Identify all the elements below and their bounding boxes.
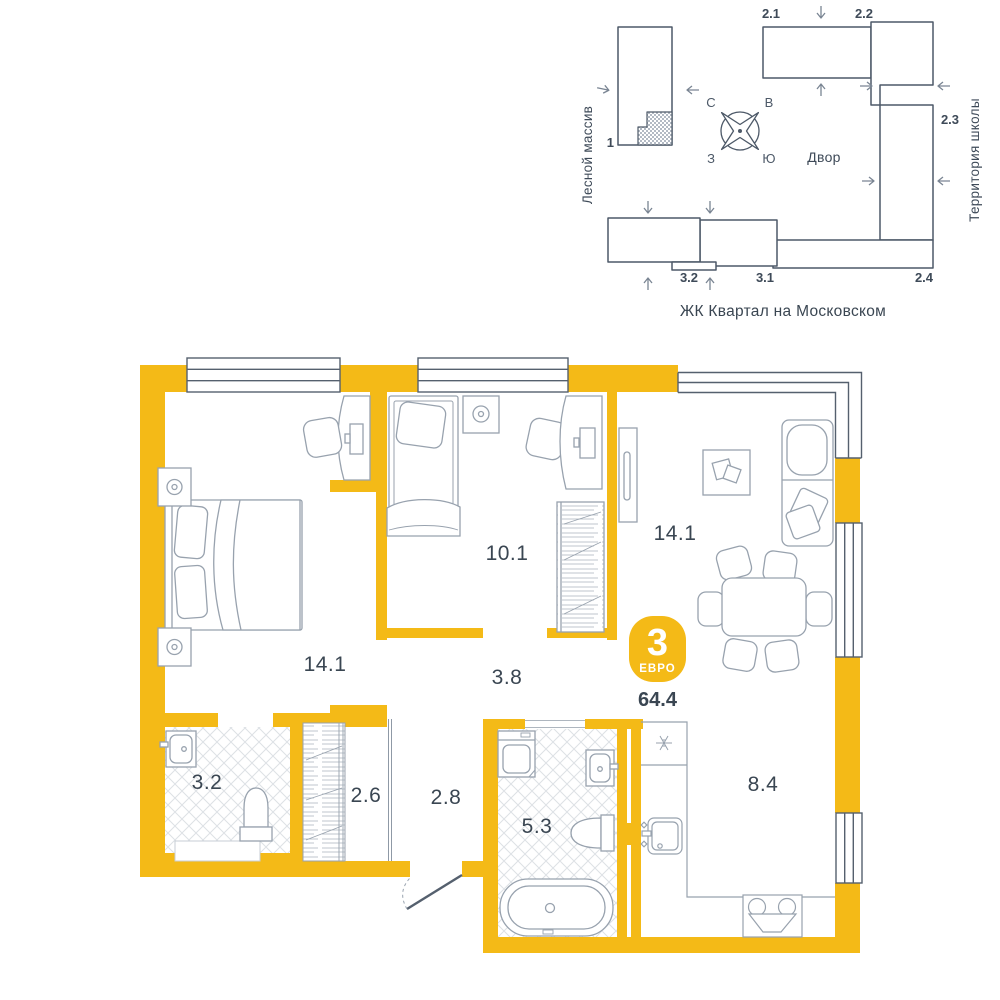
kitchen-faucet bbox=[642, 831, 651, 836]
window-right-1 bbox=[836, 523, 862, 657]
badge-type-label: ЕВРО bbox=[639, 663, 675, 675]
speaker-bottom bbox=[158, 628, 191, 666]
entry-hall-area: 2.8 bbox=[431, 786, 462, 809]
stove bbox=[743, 895, 802, 937]
bathroom-faucet bbox=[610, 764, 618, 769]
apartment-plan: 14.1 10.1 14.1 3.8 3.2 2.6 2.8 5.3 8.4 3… bbox=[140, 358, 862, 953]
compass-west: З bbox=[707, 151, 715, 166]
wardrobe-bedroom-2 bbox=[557, 502, 604, 632]
building-2-1 bbox=[763, 27, 871, 78]
desk-1 bbox=[338, 396, 370, 480]
bathroom-door-opening bbox=[525, 721, 585, 728]
wc-sink bbox=[160, 731, 196, 767]
chair-1 bbox=[302, 416, 343, 459]
window-top-1 bbox=[187, 358, 340, 392]
building-2-3 bbox=[880, 105, 933, 240]
apartment-type-badge: 3 ЕВРО 64.4 bbox=[629, 616, 686, 711]
bedroom-2-area: 10.1 bbox=[486, 542, 529, 565]
building-tab bbox=[672, 262, 716, 270]
wc-area: 3.2 bbox=[192, 771, 223, 794]
double-bed bbox=[165, 500, 302, 630]
washing-machine bbox=[498, 731, 535, 777]
fridge-icon bbox=[656, 736, 672, 750]
courtyard-label: Двор bbox=[807, 149, 841, 165]
bedroom-2-furniture bbox=[387, 396, 604, 632]
hallway-area: 3.8 bbox=[492, 666, 523, 689]
bathroom-area: 5.3 bbox=[522, 815, 553, 838]
wc-faucet bbox=[160, 742, 168, 747]
monitor-1 bbox=[350, 424, 363, 454]
site-plan: С В З Ю 1 2.1 2.2 2.3 2.4 3.1 3.2 Двор Л… bbox=[580, 6, 982, 320]
kitchen-counter bbox=[641, 722, 835, 897]
building-2-3-label: 2.3 bbox=[941, 112, 959, 127]
building-3-1-label: 3.1 bbox=[756, 270, 774, 285]
tv-stand bbox=[619, 428, 637, 522]
speaker-bedroom-2 bbox=[463, 396, 499, 433]
site-buildings bbox=[608, 22, 933, 270]
wall-niche bbox=[175, 841, 260, 861]
bedroom-1-area: 14.1 bbox=[304, 653, 347, 676]
compass-center-dot bbox=[738, 129, 742, 133]
window-corner bbox=[678, 373, 862, 459]
closet-sliding-door bbox=[389, 719, 392, 861]
compass-north: С bbox=[706, 95, 715, 110]
compass: С В З Ю bbox=[706, 95, 775, 166]
total-area-value: 64.4 bbox=[638, 689, 678, 711]
bathtub bbox=[500, 879, 613, 936]
building-3-2 bbox=[608, 218, 700, 262]
corner-sofa bbox=[782, 420, 833, 546]
monitor-2 bbox=[580, 428, 595, 458]
left-area-label: Лесной массив bbox=[580, 106, 595, 204]
badge-rooms-count: 3 bbox=[647, 622, 668, 664]
coffee-table bbox=[703, 450, 750, 495]
building-2-2 bbox=[871, 22, 933, 105]
window-right-2 bbox=[836, 813, 862, 883]
plan-canvas: С В З Ю 1 2.1 2.2 2.3 2.4 3.1 3.2 Двор Л… bbox=[0, 0, 1000, 1000]
living-room-area: 14.1 bbox=[654, 522, 697, 545]
floorplan-screenshot: С В З Ю 1 2.1 2.2 2.3 2.4 3.1 3.2 Двор Л… bbox=[0, 0, 1000, 1000]
complex-title: ЖК Квартал на Московском bbox=[680, 303, 886, 320]
dining-table bbox=[722, 578, 806, 636]
building-2-4-label: 2.4 bbox=[915, 270, 934, 285]
wardrobe-area: 2.6 bbox=[351, 784, 382, 807]
window-top-2 bbox=[418, 358, 568, 392]
kitchen-furniture bbox=[641, 722, 835, 937]
bedroom-1-furniture bbox=[158, 396, 370, 666]
right-area-label: Территория школы bbox=[967, 98, 982, 222]
building-1-label: 1 bbox=[607, 135, 614, 150]
desk-2 bbox=[560, 396, 602, 489]
kitchen-sink bbox=[641, 818, 682, 854]
building-2-2-label: 2.2 bbox=[855, 6, 873, 21]
compass-east: В bbox=[765, 95, 774, 110]
building-2-4 bbox=[773, 240, 933, 268]
building-3-2-label: 3.2 bbox=[680, 270, 698, 285]
dining-set bbox=[698, 544, 832, 673]
speaker-top bbox=[158, 468, 191, 506]
building-3-1 bbox=[700, 220, 777, 266]
building-2-1-label: 2.1 bbox=[762, 6, 780, 21]
compass-south: Ю bbox=[762, 151, 775, 166]
kitchen-area: 8.4 bbox=[748, 773, 779, 796]
single-bed bbox=[387, 396, 460, 536]
bathroom-sink bbox=[586, 750, 618, 786]
entrance-door bbox=[403, 875, 462, 909]
